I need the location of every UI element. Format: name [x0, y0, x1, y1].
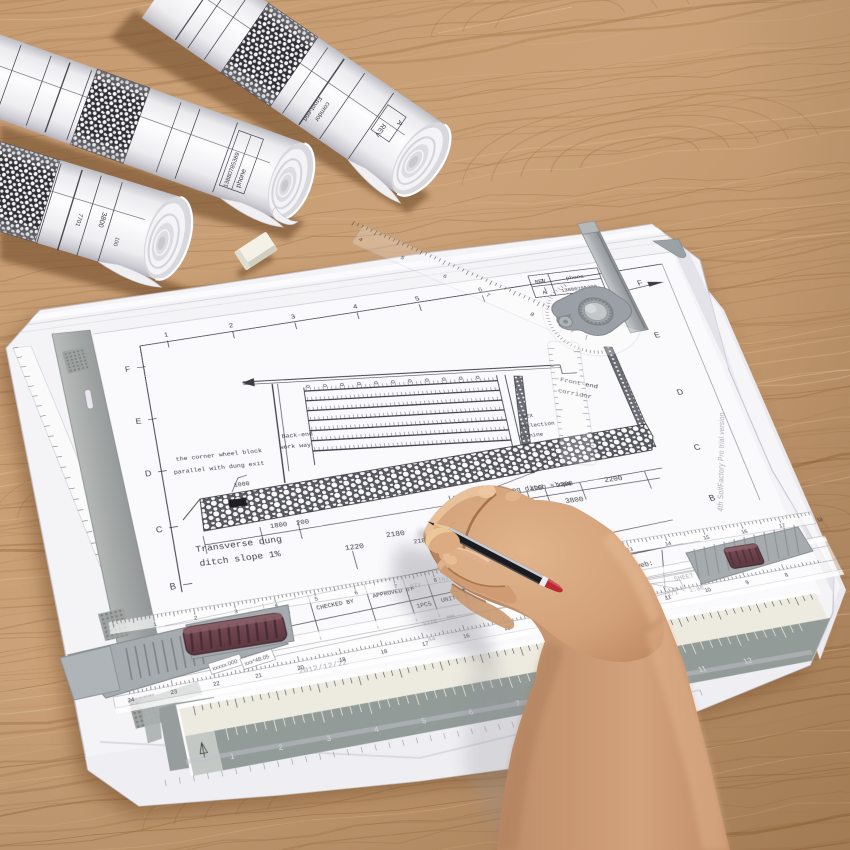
svg-text:4th SolfFactory Pro trial vers: 4th SolfFactory Pro trial version: [717, 412, 727, 513]
svg-text:D: D: [144, 469, 152, 478]
svg-text:NEX: NEX: [522, 413, 534, 420]
svg-text:200: 200: [295, 518, 310, 527]
